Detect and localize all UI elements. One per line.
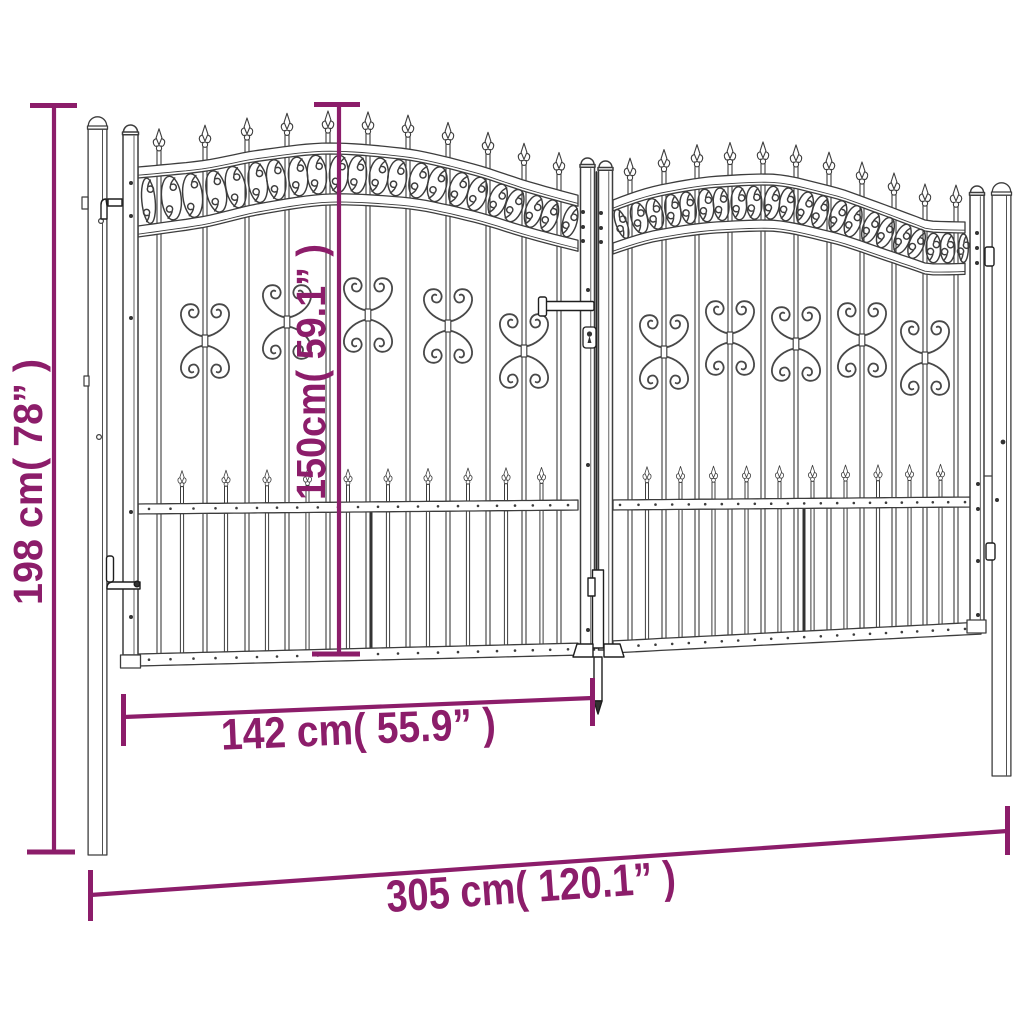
svg-text:198 cm( 78” ): 198 cm( 78” ) [5, 359, 51, 605]
svg-text:150cm( 59.1” ): 150cm( 59.1” ) [288, 244, 334, 500]
